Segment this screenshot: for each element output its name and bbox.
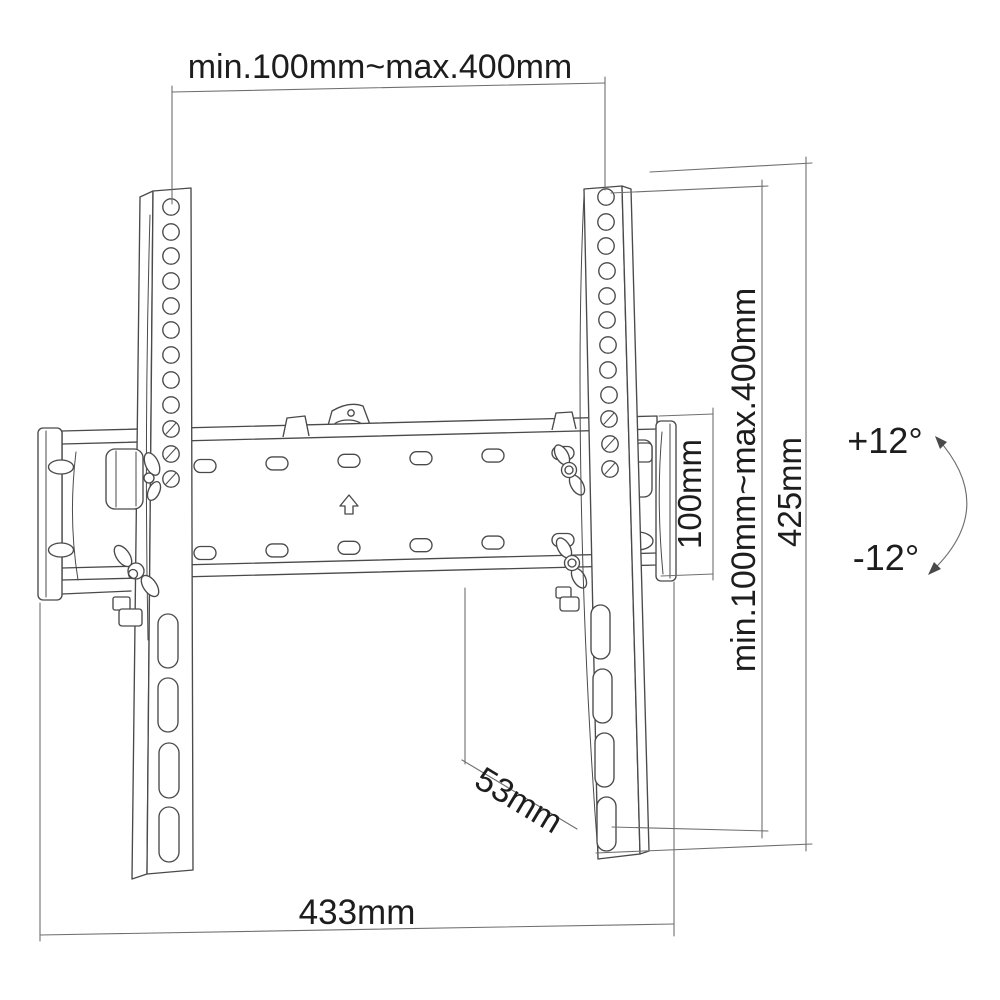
label-top-vesa-width: min.100mm~max.400mm [188, 48, 573, 86]
left-vesa-arm [132, 188, 193, 879]
label-depth: 53mm [468, 760, 569, 841]
label-tilt-down: -12° [853, 537, 919, 578]
label-tilt-up: +12° [847, 420, 922, 461]
label-vesa-height-range: min.100mm~max.400mm [725, 288, 763, 673]
right-vesa-arm [580, 186, 649, 859]
wall-mount-dimension-diagram: min.100mm~max.400mm 100mm min.100mm~max.… [0, 0, 1000, 1000]
tilt-angle-indicator [928, 436, 967, 575]
diagram-canvas: min.100mm~max.400mm 100mm min.100mm~max.… [0, 0, 1000, 1000]
dim-top-vesa-width [172, 77, 605, 204]
label-total-width: 433mm [299, 893, 416, 932]
label-total-height: 425mm [771, 437, 808, 547]
label-plate-height: 100mm [671, 439, 708, 549]
